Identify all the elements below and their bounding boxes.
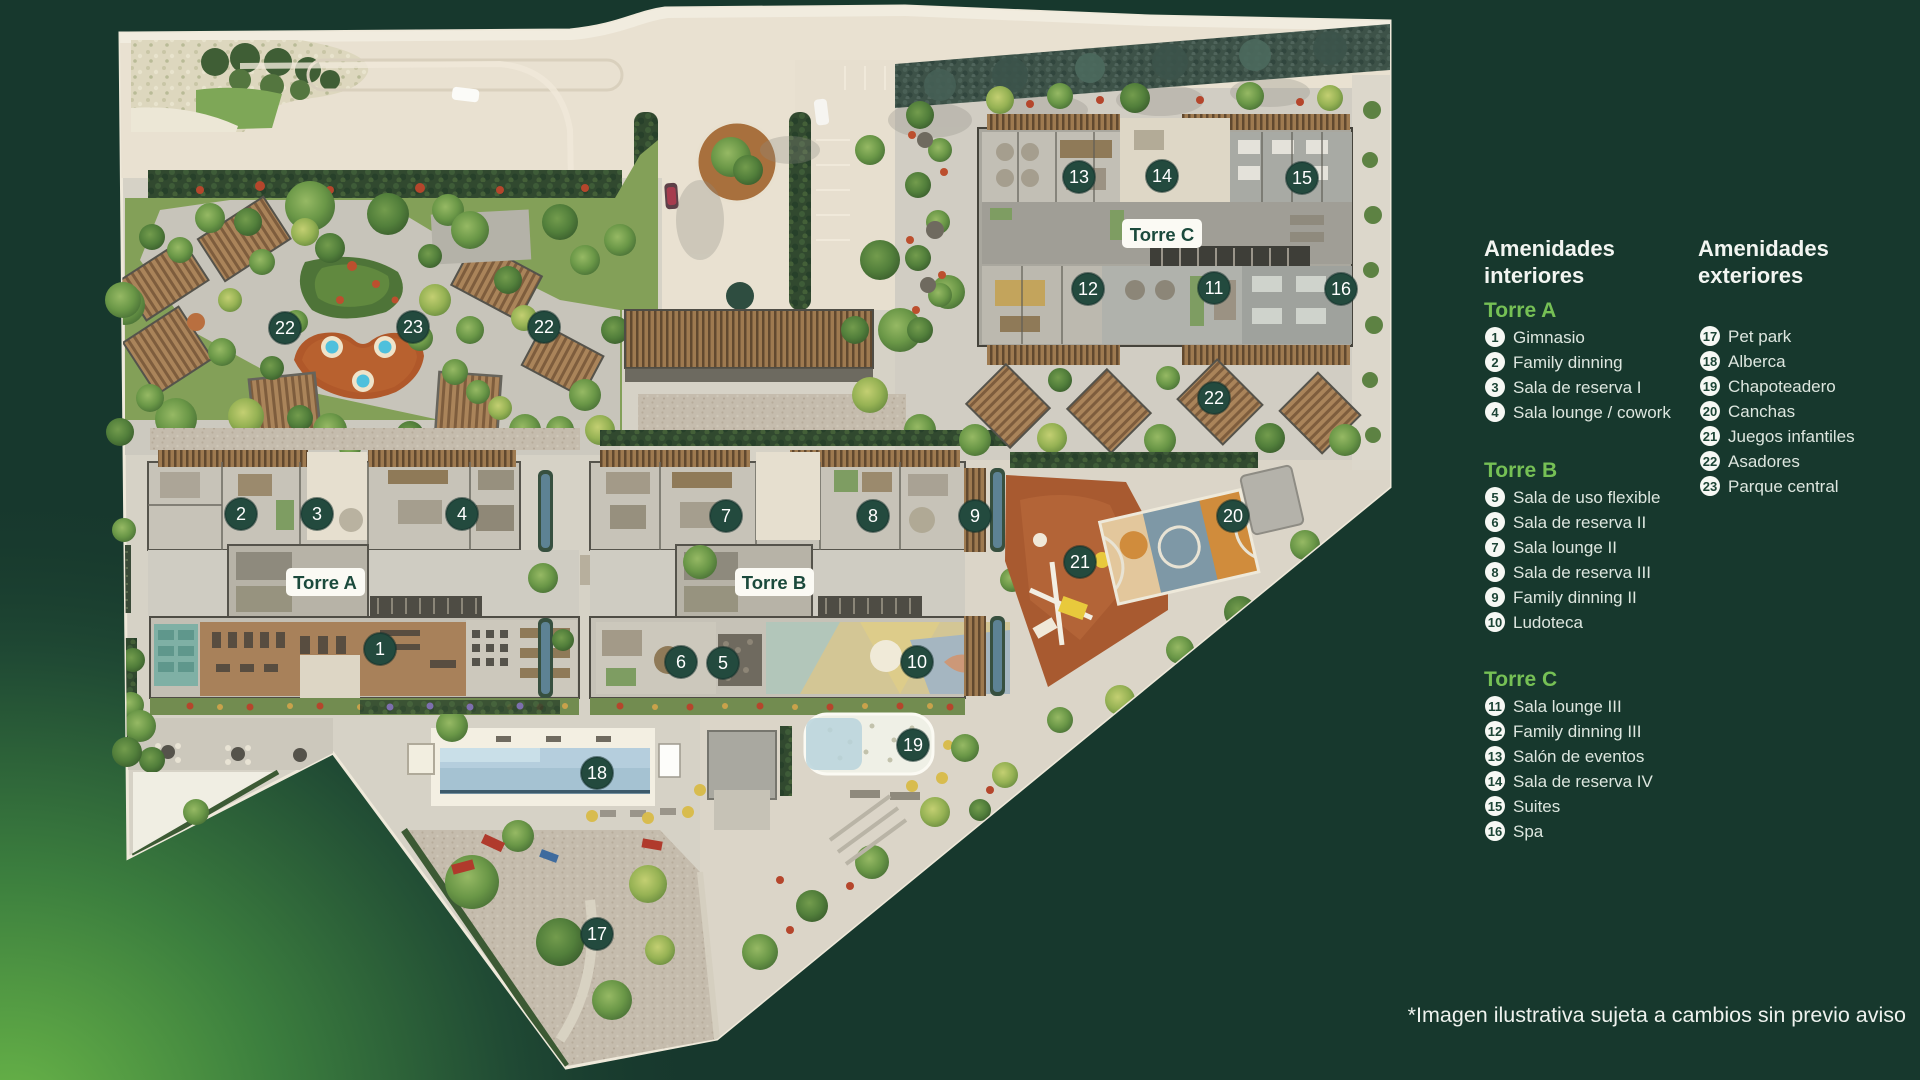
svg-text:Torre A: Torre A: [1484, 299, 1556, 322]
svg-text:20: 20: [1703, 404, 1717, 419]
svg-text:6: 6: [676, 652, 686, 672]
svg-text:21: 21: [1703, 429, 1717, 444]
svg-text:18: 18: [1703, 354, 1717, 369]
svg-text:7: 7: [1491, 540, 1498, 555]
svg-text:2: 2: [236, 504, 246, 524]
svg-text:23: 23: [1703, 479, 1717, 494]
svg-text:Family dinning: Family dinning: [1513, 353, 1623, 372]
svg-text:Spa: Spa: [1513, 822, 1544, 841]
svg-text:Salón de eventos: Salón de eventos: [1513, 747, 1644, 766]
svg-text:2: 2: [1491, 355, 1498, 370]
svg-text:Torre B: Torre B: [1484, 459, 1557, 482]
svg-text:Alberca: Alberca: [1728, 352, 1786, 371]
svg-text:13: 13: [1069, 167, 1089, 187]
svg-text:Suites: Suites: [1513, 797, 1560, 816]
svg-text:8: 8: [868, 506, 878, 526]
svg-text:3: 3: [1491, 380, 1498, 395]
svg-text:9: 9: [970, 506, 980, 526]
svg-text:interiores: interiores: [1484, 263, 1584, 288]
svg-text:Amenidades: Amenidades: [1698, 236, 1829, 261]
svg-text:3: 3: [312, 504, 322, 524]
svg-text:14: 14: [1152, 166, 1172, 186]
svg-text:22: 22: [534, 317, 554, 337]
svg-text:22: 22: [1703, 454, 1717, 469]
svg-text:10: 10: [907, 652, 927, 672]
svg-text:Sala de reserva III: Sala de reserva III: [1513, 563, 1651, 582]
svg-text:16: 16: [1488, 824, 1502, 839]
svg-text:22: 22: [275, 318, 295, 338]
svg-text:4: 4: [1491, 405, 1499, 420]
svg-text:Gimnasio: Gimnasio: [1513, 328, 1585, 347]
svg-text:12: 12: [1488, 724, 1502, 739]
svg-text:19: 19: [1703, 379, 1717, 394]
svg-text:Sala lounge III: Sala lounge III: [1513, 697, 1622, 716]
svg-text:20: 20: [1223, 506, 1243, 526]
svg-text:10: 10: [1488, 615, 1502, 630]
svg-text:Family dinning II: Family dinning II: [1513, 588, 1637, 607]
svg-text:Sala de reserva I: Sala de reserva I: [1513, 378, 1642, 397]
svg-text:Asadores: Asadores: [1728, 452, 1800, 471]
svg-text:17: 17: [1703, 329, 1717, 344]
svg-text:Parque central: Parque central: [1728, 477, 1839, 496]
svg-text:5: 5: [1491, 490, 1498, 505]
svg-text:Sala lounge / cowork: Sala lounge / cowork: [1513, 403, 1671, 422]
svg-text:5: 5: [718, 653, 728, 673]
svg-text:18: 18: [587, 763, 607, 783]
svg-text:23: 23: [403, 317, 423, 337]
svg-text:Torre B: Torre B: [742, 572, 806, 593]
svg-text:15: 15: [1292, 168, 1312, 188]
svg-text:Sala lounge II: Sala lounge II: [1513, 538, 1617, 557]
svg-text:7: 7: [721, 506, 731, 526]
svg-text:19: 19: [903, 735, 923, 755]
svg-text:15: 15: [1488, 799, 1502, 814]
svg-text:17: 17: [587, 924, 607, 944]
svg-text:6: 6: [1491, 515, 1498, 530]
svg-text:*Imagen ilustrativa sujeta a c: *Imagen ilustrativa sujeta a cambios sin…: [1408, 1003, 1906, 1027]
svg-text:1: 1: [1491, 330, 1498, 345]
svg-text:22: 22: [1204, 388, 1224, 408]
svg-text:Torre A: Torre A: [293, 572, 357, 593]
svg-text:Ludoteca: Ludoteca: [1513, 613, 1583, 632]
svg-text:14: 14: [1488, 774, 1503, 789]
svg-text:11: 11: [1205, 278, 1224, 298]
svg-text:11: 11: [1488, 699, 1502, 714]
svg-text:Juegos infantiles: Juegos infantiles: [1728, 427, 1855, 446]
svg-text:9: 9: [1491, 590, 1498, 605]
svg-text:21: 21: [1070, 552, 1090, 572]
svg-text:4: 4: [457, 504, 467, 524]
svg-text:Torre C: Torre C: [1130, 224, 1194, 245]
svg-text:exteriores: exteriores: [1698, 263, 1803, 288]
svg-text:Torre C: Torre C: [1484, 668, 1557, 691]
svg-text:Sala de reserva II: Sala de reserva II: [1513, 513, 1646, 532]
svg-text:Sala de reserva IV: Sala de reserva IV: [1513, 772, 1654, 791]
svg-text:Canchas: Canchas: [1728, 402, 1795, 421]
svg-text:1: 1: [375, 639, 385, 659]
svg-text:Sala de uso flexible: Sala de uso flexible: [1513, 488, 1660, 507]
svg-text:Family dinning III: Family dinning III: [1513, 722, 1642, 741]
svg-text:Amenidades: Amenidades: [1484, 236, 1615, 261]
svg-text:12: 12: [1078, 279, 1098, 299]
svg-text:13: 13: [1488, 749, 1502, 764]
svg-text:Pet park: Pet park: [1728, 327, 1792, 346]
svg-text:Chapoteadero: Chapoteadero: [1728, 377, 1836, 396]
svg-text:8: 8: [1491, 565, 1498, 580]
svg-text:16: 16: [1331, 279, 1351, 299]
